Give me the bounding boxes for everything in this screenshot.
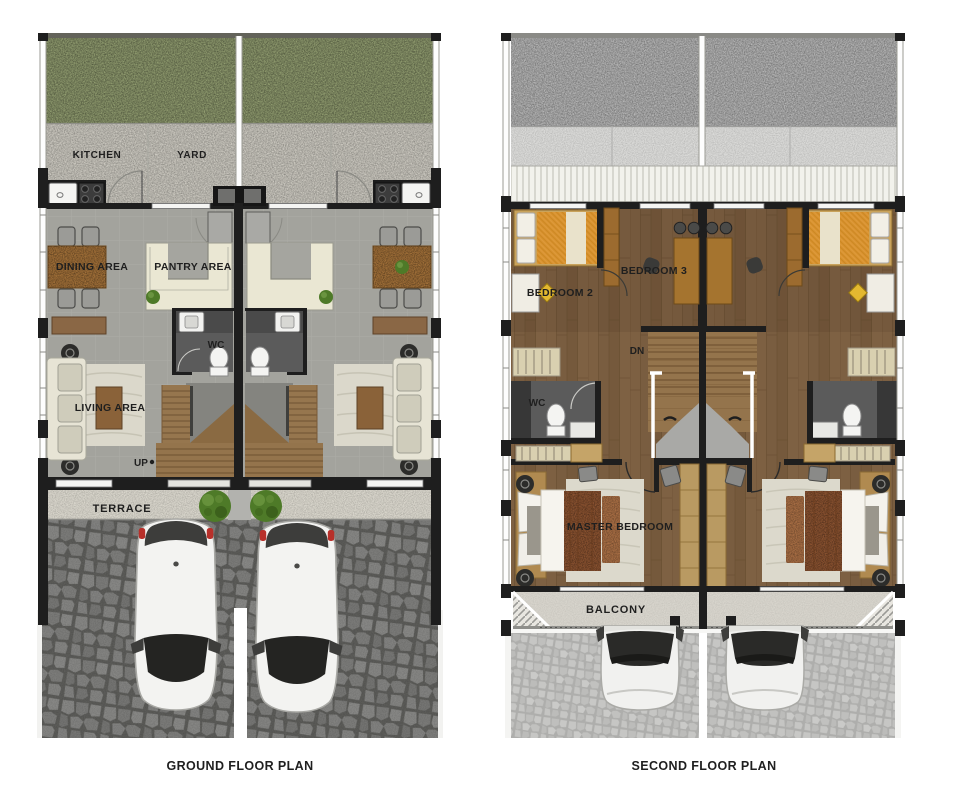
svg-text:BALCONY: BALCONY (586, 604, 646, 616)
svg-text:WC: WC (208, 340, 225, 351)
svg-text:DN: DN (630, 346, 644, 357)
svg-text:KITCHEN: KITCHEN (73, 150, 122, 161)
svg-text:UP: UP (134, 458, 148, 469)
svg-text:GROUND FLOOR PLAN: GROUND FLOOR PLAN (166, 759, 313, 773)
svg-text:SECOND FLOOR PLAN: SECOND FLOOR PLAN (632, 759, 777, 773)
svg-text:TERRACE: TERRACE (93, 503, 152, 515)
svg-text:YARD: YARD (177, 150, 207, 161)
svg-text:MASTER BEDROOM: MASTER BEDROOM (567, 521, 673, 533)
svg-text:WC: WC (529, 398, 546, 409)
svg-text:BEDROOM 3: BEDROOM 3 (621, 265, 687, 277)
svg-text:PANTRY AREA: PANTRY AREA (154, 261, 232, 273)
svg-text:DINING AREA: DINING AREA (56, 261, 128, 273)
svg-text:LIVING AREA: LIVING AREA (75, 402, 146, 414)
svg-text:BEDROOM 2: BEDROOM 2 (527, 287, 593, 299)
